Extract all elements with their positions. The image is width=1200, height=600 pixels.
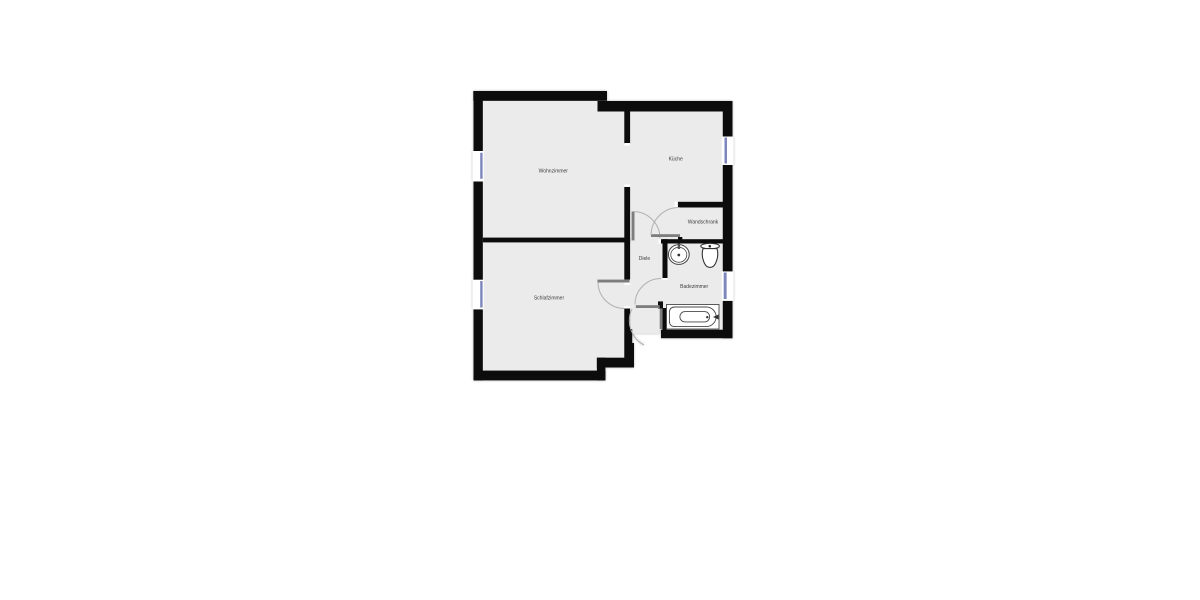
- svg-text:Schlafzimmer: Schlafzimmer: [534, 296, 565, 302]
- svg-text:Diele: Diele: [639, 256, 651, 262]
- svg-text:Wandschrank: Wandschrank: [688, 220, 719, 226]
- svg-text:Badezimmer: Badezimmer: [680, 284, 708, 290]
- svg-text:Wohnzimmer: Wohnzimmer: [539, 168, 569, 174]
- svg-text:Küche: Küche: [669, 156, 683, 162]
